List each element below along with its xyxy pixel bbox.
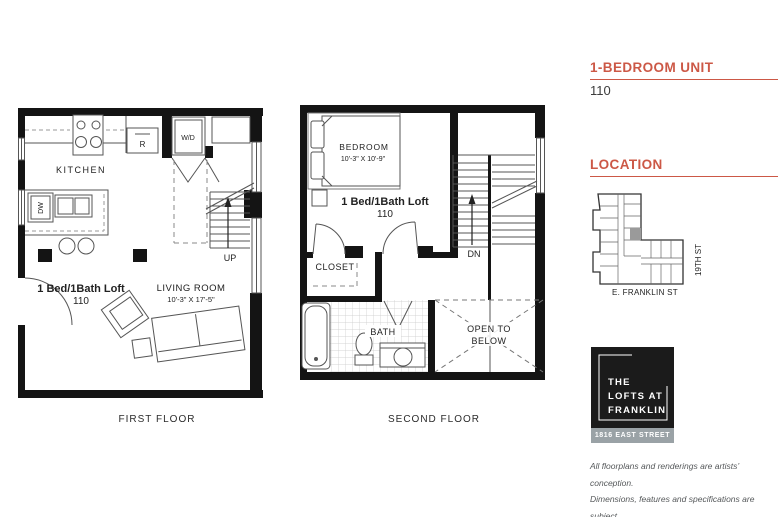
street-label-franklin: E. FRANKLIN ST [612, 288, 678, 297]
window-symbols [537, 138, 545, 193]
bath-label: BATH [370, 327, 395, 337]
kitchen-label: KITCHEN [56, 165, 106, 175]
unit-number-label-f2: 110 [377, 209, 393, 220]
disclaimer-line-2: Dimensions, features and specifications … [590, 491, 780, 517]
location-title: LOCATION [590, 157, 778, 177]
closet-label: CLOSET [315, 262, 354, 272]
unit-type-label-f1: 1 Bed/1Bath Loft [37, 283, 125, 295]
living-room-label: LIVING ROOM [157, 283, 226, 294]
highlighted-unit [630, 228, 641, 240]
bedroom-label: BEDROOM [339, 142, 389, 152]
sofa [152, 306, 245, 362]
disclaimer-line-1: All floorplans and renderings are artist… [590, 458, 780, 491]
refrigerator-label: R [140, 140, 146, 149]
open-to-below-line2: BELOW [471, 336, 506, 346]
stove [73, 115, 103, 155]
ottoman [132, 338, 152, 358]
down-label: DN [468, 249, 481, 259]
kitchen-sink [55, 195, 92, 217]
stairs-up-arrow [225, 197, 232, 248]
page: R W/D DW [0, 0, 780, 517]
logo-address-bar: 1816 EAST STREET [591, 428, 674, 443]
up-label: UP [224, 253, 237, 263]
living-room-dims: 10'-3" X 17'-5" [167, 295, 215, 304]
first-floor-plan: R W/D DW [14, 100, 270, 404]
under-stair-closet-dashed [174, 160, 207, 243]
second-floor-plan: DN BEDROOM 10'-3" X 10'-9" 1 Bed/1Bath L… [296, 98, 548, 386]
caption-second-floor: SECOND FLOOR [354, 414, 514, 425]
toilet [355, 333, 373, 365]
logo-line2: LOFTS AT [608, 390, 663, 404]
vanity-sink [380, 343, 425, 367]
location-map: 19TH ST E. FRANKLIN ST [588, 190, 712, 302]
armchair [101, 290, 148, 337]
caption-first-floor: FIRST FLOOR [77, 414, 237, 425]
bar-stools [59, 238, 94, 254]
street-label-19th: 19TH ST [694, 244, 703, 276]
unit-number-label-f1: 110 [73, 296, 89, 307]
logo: THE LOFTS AT FRANKLIN [591, 347, 674, 428]
bedroom-dims: 10'-3" X 10'-9" [341, 156, 386, 163]
open-to-below-line1: OPEN TO [467, 324, 511, 334]
unit-title: 1-BEDROOM UNIT [590, 60, 778, 80]
logo-line1: THE [608, 376, 631, 390]
washer-dryer-label: W/D [181, 135, 195, 142]
disclaimer: All floorplans and renderings are artist… [590, 458, 780, 517]
nightstand [312, 190, 327, 206]
unit-type-label-f2: 1 Bed/1Bath Loft [341, 196, 429, 208]
dishwasher-label: DW [38, 202, 45, 214]
unit-number: 110 [590, 83, 611, 98]
bathtub [302, 303, 330, 369]
logo-line3: FRANKLIN [608, 404, 666, 418]
